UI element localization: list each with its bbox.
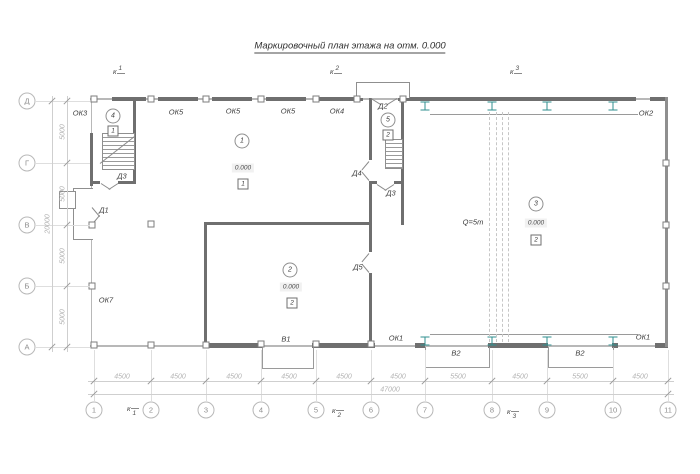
room-type-3: 2 — [531, 235, 542, 246]
window-label-ok2: ОК2 — [639, 109, 653, 118]
room-elevation-2: 0.000 — [280, 283, 302, 292]
section-mark-3-bottom: к3 — [507, 407, 519, 416]
wall-segment — [118, 181, 136, 184]
door-swing — [362, 161, 370, 170]
dimension-total: 20000 — [45, 214, 52, 233]
section-number: 2 — [336, 410, 345, 419]
crane-rail-bottom — [430, 334, 638, 335]
room-type-4: 1 — [108, 126, 119, 137]
dimension-value: 4500 — [336, 374, 352, 381]
window-label-ok3: ОК3 — [73, 109, 87, 118]
window-segment — [112, 97, 146, 101]
wall-segment — [369, 97, 372, 160]
window-label-ok5: ОК5 — [281, 107, 295, 116]
dimension-value: 5000 — [60, 186, 67, 202]
rail-support-icon — [421, 337, 430, 346]
rail-support-icon — [543, 337, 552, 346]
axis-line — [36, 163, 90, 164]
section-mark-3-top: к3 — [510, 67, 522, 78]
room-type-1: 1 — [238, 179, 249, 190]
column-mark — [91, 342, 98, 349]
wall-segment — [204, 222, 372, 225]
axis-bubble-3: 3 — [198, 402, 215, 419]
axis-bubble-b: Б — [19, 278, 36, 295]
axis-bubble-2: 2 — [143, 402, 160, 419]
wall-segment — [312, 343, 375, 348]
room-number-5: 5 — [381, 113, 396, 128]
section-number: 2 — [334, 65, 343, 74]
axis-line — [36, 286, 90, 287]
dimension-value: 4500 — [632, 374, 648, 381]
section-mark-2-top: к2 — [330, 67, 342, 78]
window-segment — [212, 97, 252, 101]
section-number: 1 — [117, 65, 126, 74]
rail-support-icon — [488, 102, 497, 111]
dimension-line — [52, 96, 53, 352]
gate-label-v2: В2 — [575, 349, 584, 358]
dimension-value: 4500 — [512, 374, 528, 381]
room-elevation-1: 0.000 — [232, 164, 254, 173]
axis-bubble-d: Д — [19, 93, 36, 110]
room-number-3: 3 — [529, 197, 544, 212]
section-number: 3 — [511, 411, 520, 420]
column-mark — [663, 283, 670, 290]
door-label-d5: Д5 — [353, 263, 362, 272]
dimension-value: 5000 — [60, 124, 67, 140]
crane-capacity-label: Q=5т — [463, 218, 484, 227]
stairs-right — [385, 139, 403, 169]
column-mark — [663, 222, 670, 229]
wall-segment — [205, 343, 262, 348]
wall-segment — [369, 181, 377, 184]
wall-segment — [204, 222, 207, 345]
window-segment — [158, 97, 198, 101]
axis-bubble-a: А — [19, 339, 36, 356]
gate-apron — [262, 347, 314, 369]
column-mark — [400, 96, 407, 103]
column-mark — [148, 221, 155, 228]
column-mark — [148, 342, 155, 349]
crane-track-dashed — [508, 112, 509, 342]
wall-segment — [90, 181, 100, 184]
room-type-2: 2 — [287, 298, 298, 309]
axis-bubble-5: 5 — [308, 402, 325, 419]
crane-track-dashed — [496, 112, 497, 342]
column-mark — [203, 342, 210, 349]
door-label-d3: Д3 — [386, 189, 395, 198]
axis-bubble-g: Г — [19, 155, 36, 172]
gate-label-v2: В2 — [451, 349, 460, 358]
crane-track-dashed — [489, 112, 490, 342]
window-label-ok5: ОК5 — [169, 108, 183, 117]
drawing-title: Маркировочный план этажа на отм. 0.000 — [254, 41, 445, 54]
room-number-2: 2 — [283, 263, 298, 278]
door-label-d1: Д1 — [99, 206, 108, 215]
axis-line — [36, 347, 90, 348]
axis-bubble-4: 4 — [253, 402, 270, 419]
column-mark — [313, 341, 320, 348]
axis-bubble-9: 9 — [539, 402, 556, 419]
column-mark — [203, 96, 210, 103]
axis-line — [36, 101, 90, 102]
gate-label-v1: В1 — [281, 335, 290, 344]
dimension-value: 4500 — [281, 374, 297, 381]
section-number: 1 — [131, 408, 140, 417]
axis-bubble-6: 6 — [363, 402, 380, 419]
axis-bubble-10: 10 — [605, 402, 622, 419]
crane-rail-top — [430, 114, 638, 115]
column-mark — [663, 160, 670, 167]
rail-support-icon — [609, 337, 618, 346]
door-label-d4: Д4 — [352, 169, 361, 178]
window-segment — [266, 97, 306, 101]
axis-bubble-1: 1 — [86, 402, 103, 419]
column-mark — [148, 96, 155, 103]
door-swing — [109, 183, 119, 190]
section-mark-1-bottom: к1 — [127, 404, 139, 413]
dimension-value: 5000 — [60, 309, 67, 325]
door-swing — [362, 253, 370, 262]
axis-bubble-7: 7 — [417, 402, 434, 419]
door-label-d2: Д2 — [378, 102, 387, 111]
dimension-value: 4500 — [226, 374, 242, 381]
rail-support-icon — [421, 102, 430, 111]
room-number-1: 1 — [235, 134, 250, 149]
room-number-4: 4 — [106, 109, 121, 124]
window-label-ok1: ОК1 — [636, 333, 650, 342]
column-mark — [354, 96, 361, 103]
window-label-ok7: ОК7 — [99, 296, 113, 305]
rail-support-icon — [543, 102, 552, 111]
wall-segment — [90, 133, 93, 186]
section-mark-1-top: к1 — [113, 67, 125, 78]
wall-segment — [398, 97, 636, 101]
wall-segment — [369, 181, 372, 252]
wall-segment — [369, 273, 372, 347]
dimension-value: 5000 — [60, 248, 67, 264]
dimension-total: 47000 — [380, 387, 399, 394]
window-label-ok4: ОК4 — [330, 107, 344, 116]
room-elevation-3: 0.000 — [525, 219, 547, 228]
column-mark — [368, 341, 375, 348]
floor-plan-drawing: Маркировочный план этажа на отм. 0.000 к… — [0, 0, 700, 474]
axis-bubble-8: 8 — [484, 402, 501, 419]
crane-track-dashed — [502, 112, 503, 342]
dimension-value: 5500 — [450, 374, 466, 381]
window-label-ok5: ОК5 — [226, 107, 240, 116]
column-mark — [258, 341, 265, 348]
door-swing — [362, 172, 370, 181]
column-mark — [91, 96, 98, 103]
wall-segment — [488, 343, 548, 348]
window-label-ok1: ОК1 — [389, 334, 403, 343]
rail-support-icon — [609, 102, 618, 111]
column-mark — [313, 96, 320, 103]
column-mark — [258, 96, 265, 103]
dimension-value: 4500 — [170, 374, 186, 381]
dimension-value: 5500 — [572, 374, 588, 381]
dimension-value: 4500 — [390, 374, 406, 381]
dimension-value: 4500 — [114, 374, 130, 381]
dimension-line — [88, 381, 674, 382]
section-mark-2-bottom: к2 — [332, 406, 344, 415]
axis-bubble-v: В — [19, 217, 36, 234]
axis-bubble-11: 11 — [660, 402, 677, 419]
section-number: 3 — [514, 65, 523, 74]
room-type-5: 2 — [383, 130, 394, 141]
door-label-d3: Д3 — [117, 172, 126, 181]
dimension-line — [88, 394, 674, 395]
